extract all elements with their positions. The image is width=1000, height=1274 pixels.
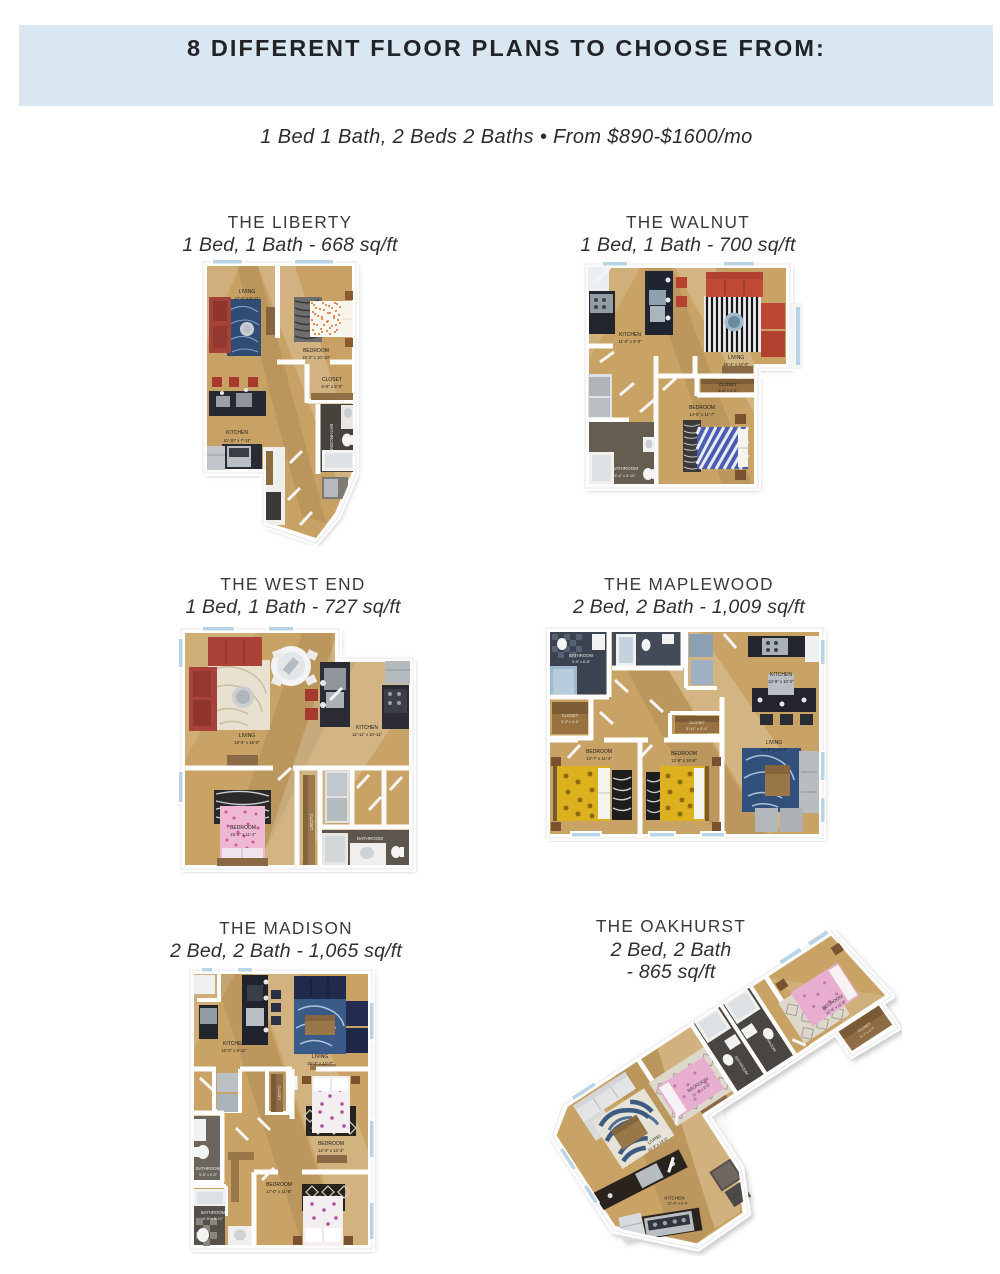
svg-text:17'-0" x 11'-8": 17'-0" x 11'-8" — [266, 1189, 292, 1194]
svg-text:BATHROOM: BATHROOM — [569, 653, 593, 658]
svg-text:9'-4" x 8'-10": 9'-4" x 8'-10" — [614, 474, 636, 478]
svg-text:LIVING: LIVING — [766, 740, 783, 746]
svg-text:LIVING: LIVING — [239, 733, 256, 739]
svg-text:BEDROOM: BEDROOM — [303, 348, 329, 354]
svg-text:BEDROOM: BEDROOM — [586, 749, 612, 755]
svg-text:CLOSET: CLOSET — [719, 382, 738, 387]
svg-text:KITCHEN: KITCHEN — [223, 1041, 245, 1047]
svg-text:BEDROOM: BEDROOM — [671, 751, 697, 757]
svg-text:BATHROOM: BATHROOM — [329, 424, 334, 450]
svg-text:6'-8" x 5'-0": 6'-8" x 5'-0" — [321, 384, 343, 389]
svg-text:15'-4" x 14'-0": 15'-4" x 14'-0" — [723, 362, 749, 367]
svg-text:KITCHEN: KITCHEN — [356, 725, 378, 731]
svg-text:5'-0" x 4'-5": 5'-0" x 4'-5" — [561, 720, 580, 724]
svg-text:KITCHEN: KITCHEN — [619, 332, 641, 338]
svg-text:BEDROOM: BEDROOM — [689, 405, 715, 411]
svg-text:6'-6" x 2'-0": 6'-6" x 2'-0" — [718, 389, 738, 393]
svg-text:12'-8" x 10'-6": 12'-8" x 10'-6" — [671, 758, 697, 763]
svg-text:CLOSET: CLOSET — [309, 814, 314, 831]
svg-text:BATHROOM: BATHROOM — [612, 466, 638, 471]
svg-text:14'-6" x 11'-7": 14'-6" x 11'-7" — [689, 412, 715, 417]
svg-text:14'-0" x 14'-4": 14'-0" x 14'-4" — [761, 747, 787, 752]
svg-text:10'-0" x 9'-11": 10'-0" x 9'-11" — [221, 1048, 247, 1053]
svg-text:12'-0" x 13'-3": 12'-0" x 13'-3" — [318, 1148, 344, 1153]
svg-text:12'-11" x 10'-11": 12'-11" x 10'-11" — [352, 732, 382, 737]
svg-text:10'-10" x 5'-0": 10'-10" x 5'-0" — [358, 843, 382, 847]
svg-text:13'-7" x 11'-4": 13'-7" x 11'-4" — [586, 756, 612, 761]
svg-text:CLOSET: CLOSET — [277, 1085, 281, 1101]
svg-text:BATHROOM: BATHROOM — [201, 1210, 225, 1215]
svg-text:BATHROOM: BATHROOM — [196, 1166, 220, 1171]
svg-text:15'-3" x 14'-7": 15'-3" x 14'-7" — [307, 1061, 333, 1066]
svg-text:9'-5" x 5'-0": 9'-5" x 5'-0" — [199, 1173, 218, 1177]
svg-text:BEDROOM: BEDROOM — [266, 1182, 292, 1188]
svg-text:11'-0" x 8'-0": 11'-0" x 8'-0" — [618, 339, 642, 344]
svg-text:15'-8" x 11'-4": 15'-8" x 11'-4" — [230, 832, 256, 837]
svg-text:17'-3" x 9'-11": 17'-3" x 9'-11" — [234, 296, 260, 301]
svg-text:13'-3" x 10'-10": 13'-3" x 10'-10" — [302, 355, 331, 360]
svg-text:CLOSET: CLOSET — [322, 377, 342, 383]
svg-text:KITCHEN: KITCHEN — [770, 672, 792, 678]
svg-text:CLOSET: CLOSET — [689, 720, 706, 725]
svg-text:BEDROOM: BEDROOM — [318, 1141, 344, 1147]
svg-text:BEDROOM: BEDROOM — [230, 825, 256, 831]
svg-text:KITCHEN: KITCHEN — [664, 1196, 684, 1201]
svg-text:10'-9" x 10'-0": 10'-9" x 10'-0" — [768, 679, 794, 684]
svg-text:10'-10" x 7'-11": 10'-10" x 7'-11" — [223, 438, 251, 443]
svg-text:3'-11" x 2'-4": 3'-11" x 2'-4" — [686, 726, 709, 731]
svg-text:BATHROOM: BATHROOM — [357, 836, 383, 841]
svg-text:9'-5" x 8'-10": 9'-5" x 8'-10" — [203, 1217, 224, 1221]
svg-text:LIVING: LIVING — [728, 355, 745, 361]
svg-text:9'-0" x 8'-8": 9'-0" x 8'-8" — [572, 660, 591, 664]
svg-text:CLOSET: CLOSET — [562, 713, 579, 718]
svg-text:KITCHEN: KITCHEN — [226, 430, 248, 436]
svg-text:15'-3" x 8'-0": 15'-3" x 8'-0" — [667, 1202, 689, 1206]
svg-text:LIVING: LIVING — [239, 289, 256, 295]
svg-text:LIVING: LIVING — [312, 1054, 329, 1060]
svg-text:16'-0" x 16'-0": 16'-0" x 16'-0" — [234, 740, 260, 745]
